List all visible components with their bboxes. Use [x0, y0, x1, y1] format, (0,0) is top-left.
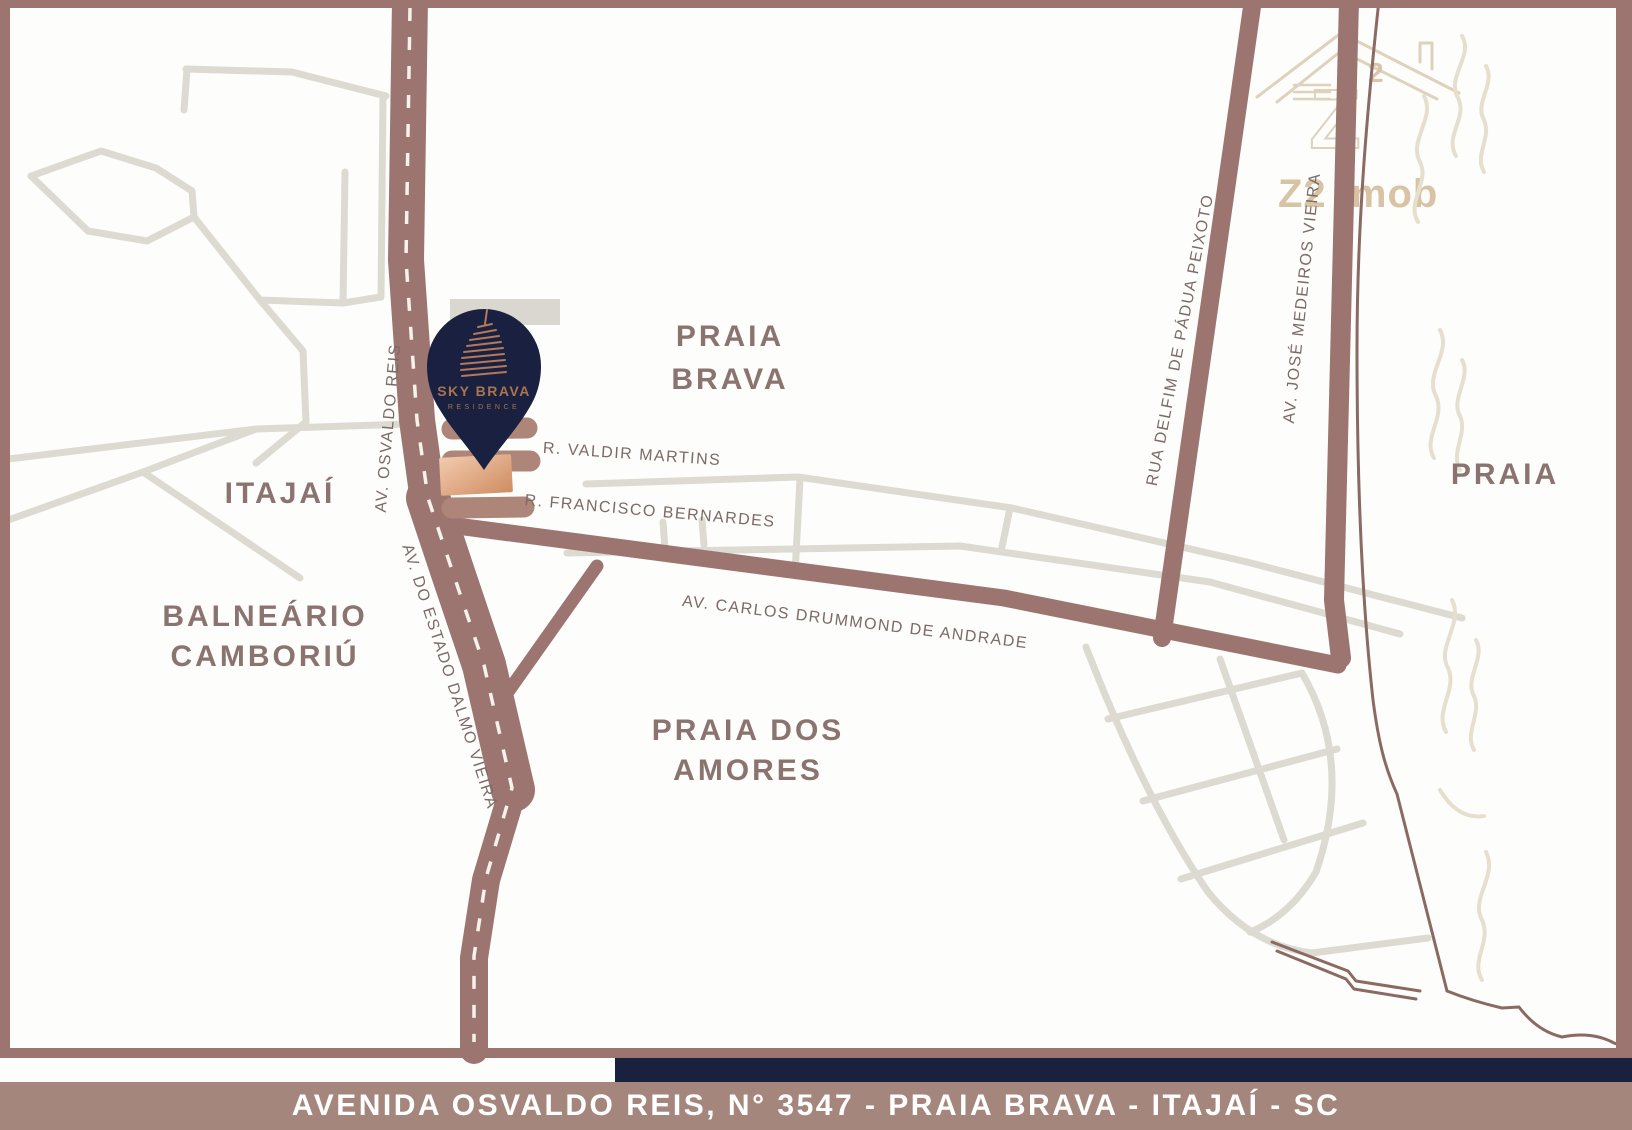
minor-streets-praia-dos-amores	[1086, 647, 1428, 953]
area-label-balneario-2: CAMBORIÚ	[171, 640, 360, 674]
area-label-itajai: ITAJAÍ	[225, 477, 336, 511]
address-banner-text: AVENIDA OSVALDO REIS, N° 3547 - PRAIA BR…	[292, 1089, 1341, 1123]
pin-tagline: RESIDENCE	[448, 404, 520, 411]
property-lot	[439, 454, 513, 496]
map-frame	[0, 0, 1632, 1058]
house-chimney-icon	[1420, 43, 1432, 69]
area-label-balneario-1: BALNEÁRIO	[162, 600, 367, 634]
area-label-praia-brava-2: BRAVA	[671, 363, 788, 397]
stub-francisco-bernardes	[452, 507, 524, 508]
map-graphics: Z 2 Z2 Imob	[0, 0, 1632, 1130]
area-label-amores-2: AMORES	[673, 754, 823, 788]
location-pin: SKY BRAVA RESIDENCE	[427, 309, 541, 470]
address-banner: AVENIDA OSVALDO REIS, N° 3547 - PRAIA BR…	[0, 1082, 1632, 1130]
area-label-amores-1: PRAIA DOS	[652, 714, 845, 748]
minor-streets-itajai	[0, 69, 407, 578]
area-label-praia: PRAIA	[1451, 458, 1559, 492]
navy-accent-strip	[615, 1058, 1632, 1082]
area-label-praia-brava-1: PRAIA	[676, 320, 784, 354]
pin-title: SKY BRAVA	[437, 383, 531, 399]
location-map: Z 2 Z2 Imob	[0, 0, 1632, 1130]
road-connector	[498, 566, 597, 706]
z2-imob-watermark: Z 2 Z2 Imob	[1257, 33, 1459, 216]
